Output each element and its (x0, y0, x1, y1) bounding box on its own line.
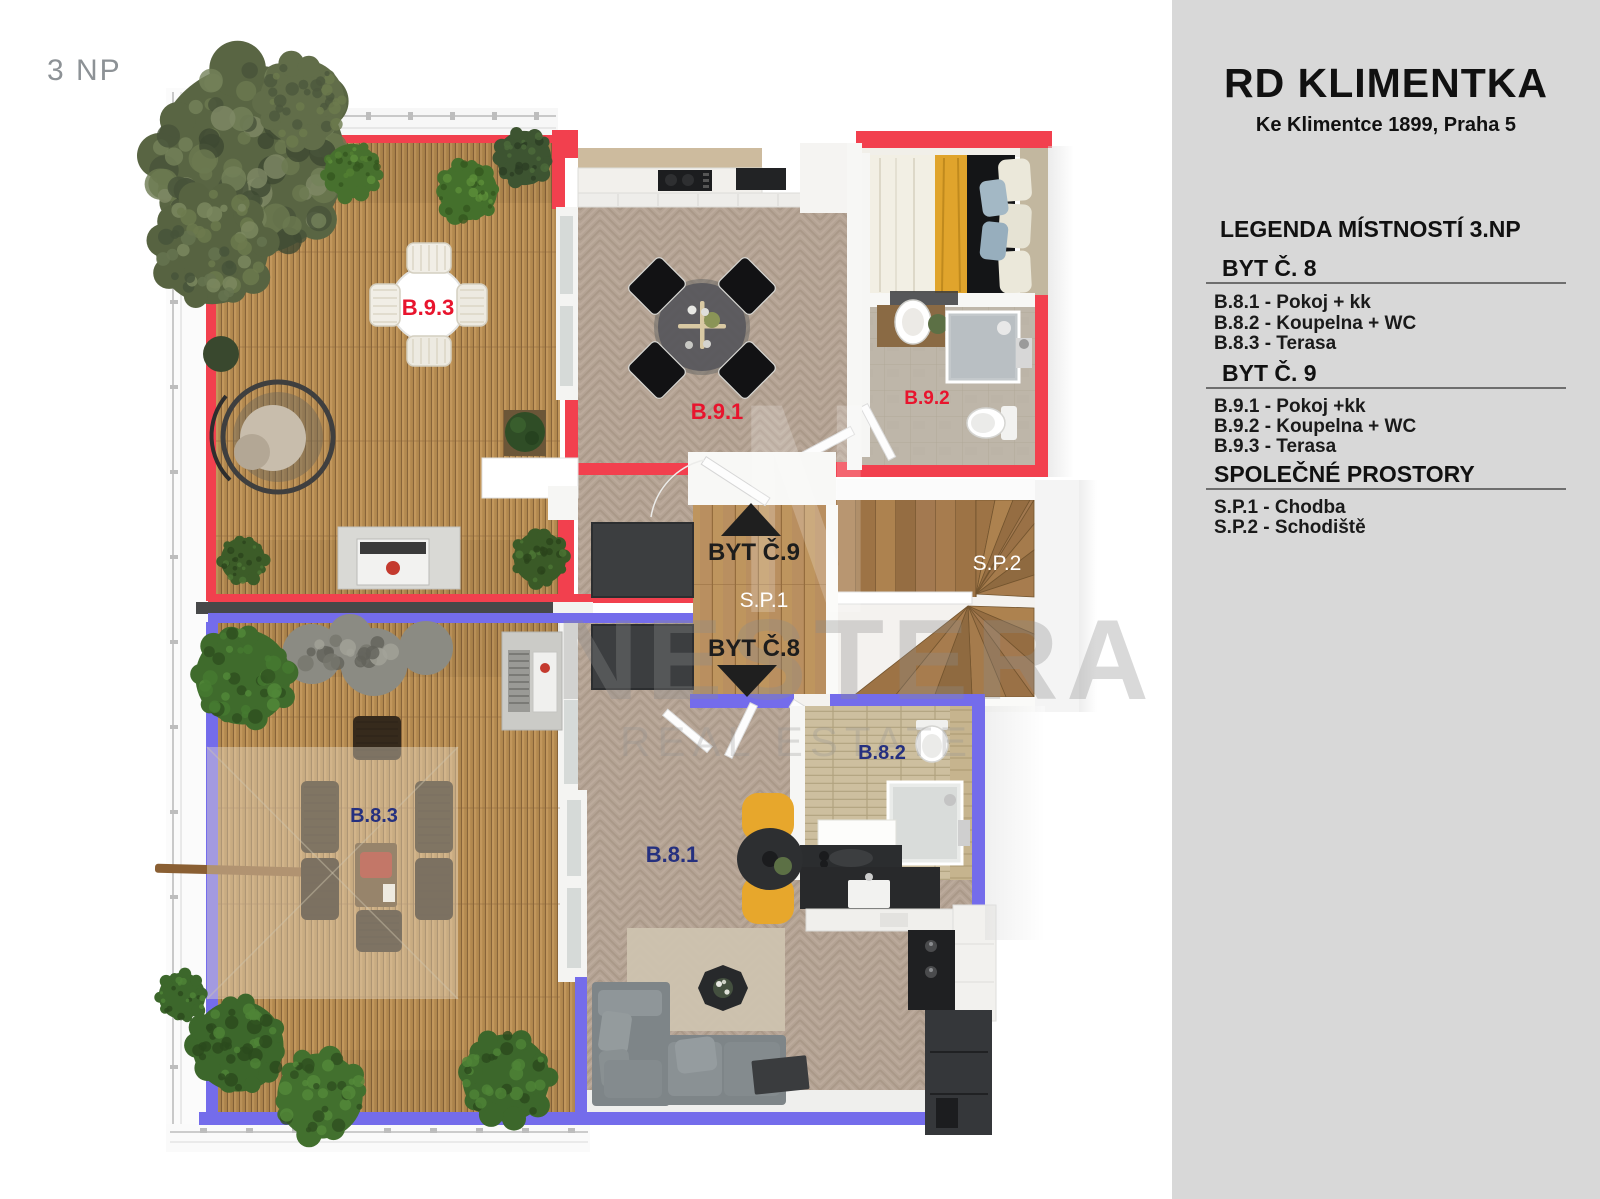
svg-text:SPOLEČNÉ PROSTORY: SPOLEČNÉ PROSTORY (1214, 460, 1475, 487)
svg-text:B.8.3: B.8.3 (350, 805, 398, 827)
svg-text:BYT Č. 8: BYT Č. 8 (1222, 254, 1317, 281)
svg-text:Ke Klimentce 1899, Praha 5: Ke Klimentce 1899, Praha 5 (1256, 114, 1516, 136)
svg-text:B.9.2: B.9.2 (904, 388, 949, 409)
svg-text:3 NP: 3 NP (47, 54, 122, 87)
svg-text:S.P.1 - Chodba: S.P.1 - Chodba (1214, 497, 1346, 518)
svg-text:NESTERA: NESTERA (556, 597, 1157, 724)
svg-text:B.9.3: B.9.3 (402, 295, 455, 320)
svg-text:BYT Č.8: BYT Č.8 (708, 634, 800, 662)
svg-text:B.8.2 - Koupelna + WC: B.8.2 - Koupelna + WC (1214, 313, 1416, 334)
svg-text:B.8.1: B.8.1 (646, 842, 699, 867)
svg-text:B.8.2: B.8.2 (858, 742, 906, 764)
svg-text:S.P.1: S.P.1 (740, 589, 789, 612)
svg-text:S.P.2 - Schodiště: S.P.2 - Schodiště (1214, 517, 1366, 538)
svg-text:B.9.1: B.9.1 (691, 399, 744, 424)
svg-text:RD KLIMENTKA: RD KLIMENTKA (1224, 60, 1548, 106)
svg-text:B.9.2 - Koupelna + WC: B.9.2 - Koupelna + WC (1214, 416, 1416, 437)
svg-text:S.P.2: S.P.2 (973, 552, 1022, 575)
svg-text:BYT Č.9: BYT Č.9 (708, 538, 800, 566)
svg-text:B.9.3 - Terasa: B.9.3 - Terasa (1214, 436, 1337, 457)
svg-text:B.8.3 - Terasa: B.8.3 - Terasa (1214, 333, 1337, 354)
svg-text:B.9.1 - Pokoj +kk: B.9.1 - Pokoj +kk (1214, 396, 1366, 417)
svg-text:REAL ESTATE: REAL ESTATE (620, 718, 974, 765)
svg-text:BYT Č. 9: BYT Č. 9 (1222, 359, 1317, 386)
svg-text:LEGENDA MÍSTNOSTÍ 3.NP: LEGENDA MÍSTNOSTÍ 3.NP (1220, 215, 1521, 242)
svg-text:B.8.1 - Pokoj + kk: B.8.1 - Pokoj + kk (1214, 292, 1371, 313)
